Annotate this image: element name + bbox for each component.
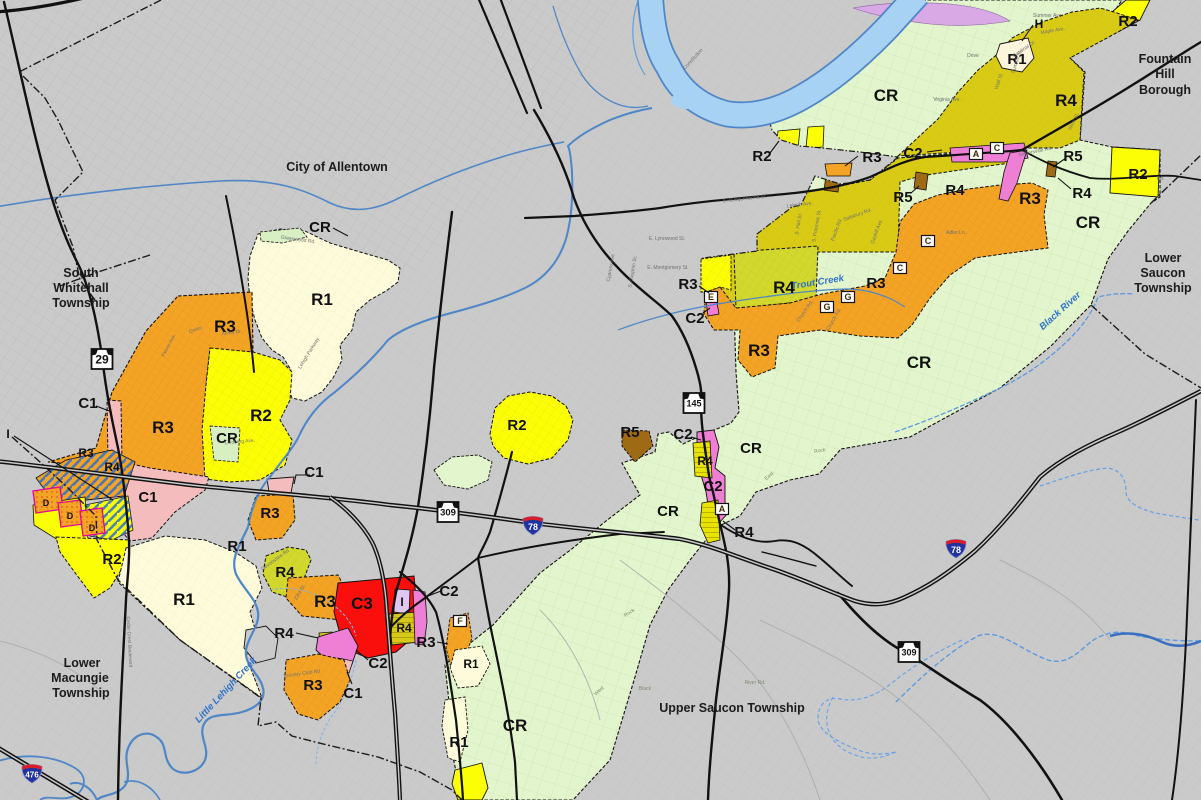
svg-text:R1: R1 [227, 538, 246, 555]
svg-text:R3: R3 [78, 446, 94, 460]
svg-text:R2: R2 [1118, 13, 1137, 30]
svg-text:C2: C2 [685, 310, 704, 327]
svg-text:C2: C2 [368, 655, 387, 672]
svg-text:R2: R2 [102, 551, 121, 568]
svg-text:R3: R3 [303, 677, 322, 694]
svg-text:145: 145 [686, 399, 701, 409]
svg-text:C1: C1 [343, 685, 362, 702]
svg-text:F: F [457, 616, 463, 626]
svg-text:R4: R4 [945, 182, 965, 199]
svg-text:CR: CR [740, 440, 762, 457]
svg-text:D: D [67, 511, 74, 521]
svg-text:R1: R1 [463, 657, 479, 671]
svg-text:R2: R2 [1128, 166, 1147, 183]
svg-text:R1: R1 [173, 590, 195, 609]
svg-text:D: D [89, 523, 96, 533]
svg-text:R4: R4 [1072, 185, 1092, 202]
svg-text:CR: CR [657, 503, 679, 520]
svg-text:CR: CR [503, 716, 528, 735]
svg-text:Black: Black [639, 686, 652, 692]
svg-text:78: 78 [951, 545, 961, 555]
svg-text:Township: Township [1134, 281, 1192, 295]
svg-text:E. Montgomery St.: E. Montgomery St. [647, 265, 688, 271]
svg-text:Fountain: Fountain [1139, 52, 1192, 66]
svg-text:R3: R3 [314, 592, 336, 611]
svg-text:South: South [63, 266, 98, 280]
svg-text:C: C [994, 143, 1001, 153]
svg-text:78: 78 [528, 522, 538, 532]
svg-text:G: G [844, 292, 851, 302]
svg-text:C: C [897, 263, 904, 273]
svg-text:River Rd.: River Rd. [745, 680, 766, 686]
svg-text:C2: C2 [673, 426, 692, 443]
svg-text:R4: R4 [1055, 91, 1077, 110]
svg-text:R4: R4 [773, 278, 795, 297]
svg-text:R3: R3 [1019, 189, 1041, 208]
svg-text:R5: R5 [620, 424, 639, 441]
svg-text:City of Allentown: City of Allentown [286, 160, 388, 174]
svg-text:C2: C2 [903, 145, 922, 162]
svg-text:R4: R4 [275, 564, 295, 581]
svg-text:309: 309 [901, 648, 916, 658]
svg-text:R2: R2 [250, 406, 272, 425]
svg-text:29: 29 [95, 353, 109, 367]
svg-text:Lower: Lower [1145, 251, 1182, 265]
svg-text:Township: Township [52, 686, 110, 700]
svg-text:Macungie: Macungie [51, 671, 109, 685]
svg-text:R3: R3 [678, 276, 697, 293]
svg-text:G: G [823, 302, 830, 312]
svg-text:R1: R1 [311, 290, 333, 309]
svg-text:Summer Ave.: Summer Ave. [1033, 13, 1063, 19]
svg-text:CR: CR [874, 86, 899, 105]
svg-text:D: D [43, 498, 50, 508]
svg-text:C3: C3 [351, 594, 373, 613]
svg-text:I: I [400, 595, 403, 609]
svg-text:E. Lynnwood St.: E. Lynnwood St. [649, 236, 685, 242]
svg-text:Virginia Ave.: Virginia Ave. [933, 97, 961, 103]
svg-text:CR: CR [1076, 213, 1101, 232]
svg-text:C1: C1 [304, 464, 323, 481]
svg-text:CR: CR [907, 353, 932, 372]
svg-text:R2: R2 [752, 148, 771, 165]
svg-text:Upper Saucon Township: Upper Saucon Township [659, 701, 805, 715]
svg-text:R5: R5 [893, 189, 912, 206]
svg-text:Borough: Borough [1139, 83, 1191, 97]
svg-text:R3: R3 [866, 275, 885, 292]
svg-text:R3: R3 [748, 341, 770, 360]
svg-text:R5: R5 [1063, 148, 1082, 165]
svg-text:R4: R4 [396, 621, 412, 635]
svg-text:R3: R3 [416, 634, 435, 651]
svg-text:R3: R3 [260, 505, 279, 522]
svg-text:Whitehall: Whitehall [53, 281, 109, 295]
svg-text:Drive: Drive [967, 53, 979, 59]
svg-text:C2: C2 [703, 478, 722, 495]
svg-text:C1: C1 [138, 489, 157, 506]
svg-text:R4: R4 [274, 625, 294, 642]
svg-text:C1: C1 [78, 395, 97, 412]
svg-text:Rd: Rd [1157, 176, 1164, 182]
svg-text:309: 309 [440, 508, 456, 519]
svg-text:E: E [708, 292, 714, 302]
svg-text:Saucon: Saucon [1140, 266, 1185, 280]
svg-text:A: A [719, 504, 726, 514]
svg-text:R4: R4 [697, 454, 713, 468]
svg-text:R4: R4 [734, 524, 754, 541]
svg-text:C: C [925, 236, 932, 246]
svg-text:I: I [6, 427, 9, 441]
svg-text:C2: C2 [439, 583, 458, 600]
svg-text:A: A [973, 149, 980, 159]
svg-text:Township: Township [52, 296, 110, 310]
svg-text:Hill: Hill [1155, 67, 1174, 81]
svg-text:R3: R3 [862, 149, 881, 166]
svg-text:R2: R2 [507, 417, 526, 434]
svg-text:R1: R1 [449, 734, 468, 751]
svg-text:CR: CR [309, 219, 331, 236]
svg-text:R4: R4 [104, 460, 120, 474]
svg-text:476: 476 [25, 771, 39, 780]
svg-text:R3: R3 [152, 418, 174, 437]
svg-text:Lower: Lower [64, 656, 101, 670]
svg-text:Adler Ln.: Adler Ln. [946, 230, 966, 236]
